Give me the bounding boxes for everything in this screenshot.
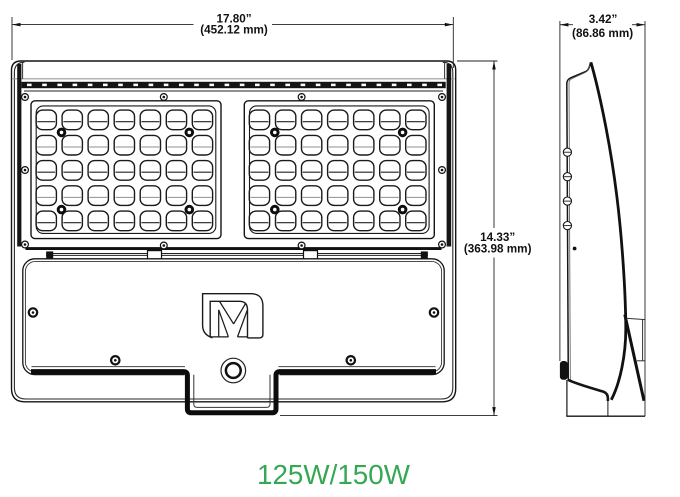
svg-text:(363.98 mm): (363.98 mm) [464, 243, 532, 256]
svg-text:3.42”: 3.42” [589, 13, 618, 26]
svg-text:(86.86 mm): (86.86 mm) [572, 27, 633, 40]
svg-text:(452.12 mm): (452.12 mm) [200, 23, 268, 36]
svg-text:125W/150W: 125W/150W [257, 459, 411, 490]
